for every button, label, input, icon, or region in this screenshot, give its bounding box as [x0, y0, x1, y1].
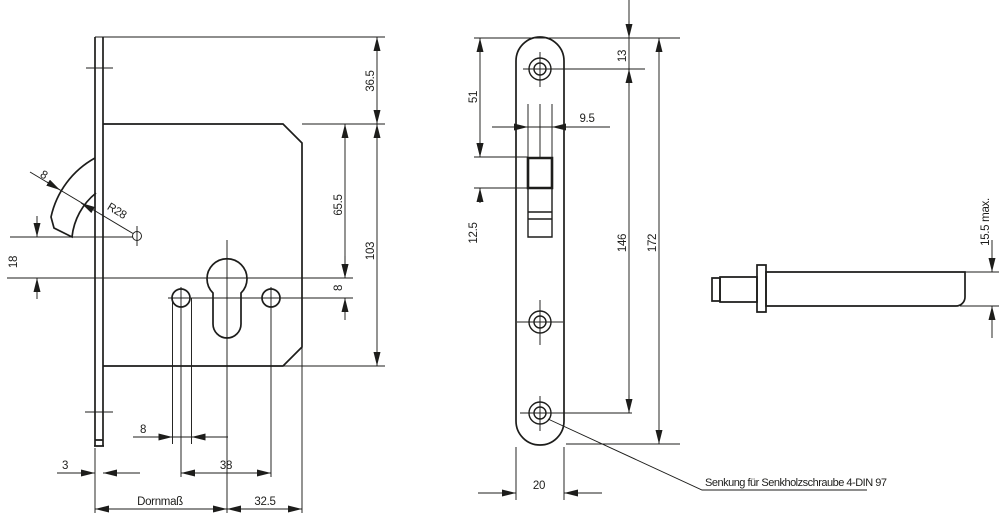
dim-hook-thickness: 8: [38, 169, 49, 182]
dim-hook-pivot-offset: 18: [8, 256, 20, 268]
lock-case-outline: [103, 124, 302, 366]
lock-body-side-view: [51, 37, 302, 446]
dim-slot-width: 9.5: [579, 113, 594, 125]
locking-pin-view: [712, 265, 965, 312]
faceplate-dimensions: 13 51 9.5 12.5 146 172 20: [468, 0, 680, 500]
technical-drawing-lock: 36.5 103 65.5 8 18 8 R28 8 38 3 Dornmaß …: [0, 0, 1000, 516]
screw-position-ticks: [85, 68, 113, 412]
dim-screw-top-offset: 13: [617, 50, 629, 62]
dim-hole-offset: 8: [333, 285, 345, 291]
screw-hole-bottom: [520, 396, 632, 431]
dim-top-height: 36.5: [365, 70, 377, 91]
dim-faceplate-thickness: 3: [62, 460, 68, 472]
dim-cylinder-center: 65.5: [333, 194, 345, 215]
ext-plate-sides: [516, 447, 564, 500]
slot-inner-lines: [528, 212, 552, 219]
dim-slot-top-offset: 51: [468, 91, 480, 103]
dim-hook-depth: 12.5: [468, 222, 480, 243]
lock-body-dimensions: 36.5 103 65.5 8 18 8 R28 8 38 3 Dornmaß …: [7, 37, 385, 513]
dim-backset-label: Dornmaß: [137, 496, 183, 508]
screw-annotation: Senkung für Senkholzschraube 4-DIN 97: [548, 419, 887, 490]
annotation-text: Senkung für Senkholzschraube 4-DIN 97: [705, 477, 887, 489]
dim-plate-width: 20: [533, 480, 545, 492]
hook-in-slot: [528, 158, 552, 188]
screw-hole-middle: [517, 300, 563, 345]
pin-flange: [757, 265, 766, 312]
dim-hole-spacing: 38: [220, 460, 232, 472]
dim-body-height: 103: [365, 242, 377, 260]
dim-hole-diameter: 8: [140, 424, 146, 436]
dim-total-length: 172: [647, 234, 659, 252]
pin-shaft: [766, 272, 965, 306]
dim-screw-spacing: 146: [617, 234, 629, 252]
pin-neck: [720, 277, 757, 302]
hole-center-verticals: [181, 287, 271, 477]
dim-edge-distance: 32.5: [254, 496, 275, 508]
pin-dimensions: 15.5 max.: [960, 198, 999, 338]
pin-tip: [712, 278, 720, 301]
dim-pin-max-diameter: 15.5 max.: [980, 198, 992, 246]
hook-slot: [528, 158, 552, 237]
faceplate-outline: [516, 37, 564, 445]
hole-edge-verticals: [173, 298, 192, 444]
